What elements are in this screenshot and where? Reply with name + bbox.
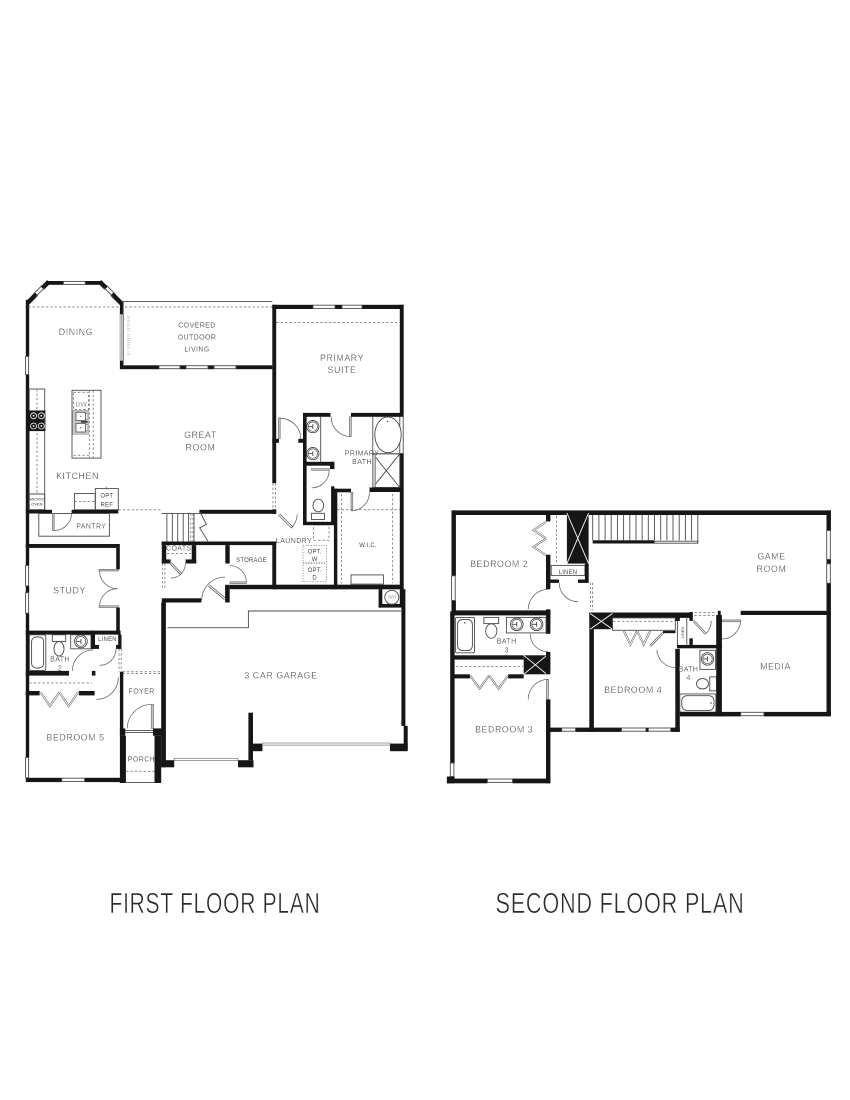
svg-text:OPT.: OPT. (308, 568, 322, 574)
svg-text:LINEN: LINEN (559, 570, 578, 576)
svg-text:SLIDING DOOR: SLIDING DOOR (126, 315, 131, 355)
svg-text:OVEN: OVEN (31, 502, 42, 507)
svg-text:BATH: BATH (352, 459, 372, 466)
svg-text:REF: REF (100, 503, 113, 509)
svg-text:*: * (106, 485, 108, 490)
svg-text:OPT: OPT (100, 494, 113, 500)
svg-text:SUITE: SUITE (328, 365, 357, 375)
svg-text:3: 3 (505, 647, 509, 654)
svg-text:BATH: BATH (679, 666, 699, 673)
svg-text:LIVING: LIVING (184, 347, 209, 354)
svg-text:BEDROOM 5: BEDROOM 5 (46, 733, 104, 743)
svg-text:PRIMARY: PRIMARY (320, 353, 364, 363)
svg-text:BATH: BATH (50, 657, 70, 664)
svg-text:DINING: DINING (59, 327, 93, 337)
svg-text:MEDIA: MEDIA (760, 662, 791, 672)
svg-text:4: 4 (686, 675, 690, 682)
svg-text:W.I.C.: W.I.C. (359, 543, 377, 549)
svg-text:OPT.: OPT. (308, 549, 322, 555)
svg-text:BEDROOM 2: BEDROOM 2 (470, 559, 528, 569)
svg-text:GREAT: GREAT (184, 430, 217, 440)
svg-text:COVERED: COVERED (178, 323, 215, 330)
svg-text:BEDROOM 3: BEDROOM 3 (475, 725, 533, 735)
svg-text:3 CAR GARAGE: 3 CAR GARAGE (244, 671, 317, 681)
svg-text:LINEN: LINEN (680, 627, 685, 639)
svg-text:BEDROOM 4: BEDROOM 4 (604, 685, 662, 695)
svg-text:ROOM: ROOM (186, 443, 216, 453)
svg-text:STUDY: STUDY (53, 586, 86, 596)
svg-text:STORAGE: STORAGE (236, 558, 267, 564)
svg-text:PORCH: PORCH (128, 756, 155, 763)
svg-text:D: D (312, 575, 317, 581)
svg-text:ROOM: ROOM (757, 564, 787, 574)
svg-text:COATS: COATS (166, 546, 192, 553)
svg-text:OUTDOOR: OUTDOOR (178, 335, 217, 342)
svg-text:SECOND FLOOR PLAN: SECOND FLOOR PLAN (496, 888, 745, 920)
svg-text:W: W (312, 557, 318, 563)
svg-text:DW: DW (76, 401, 88, 408)
svg-text:FOYER: FOYER (129, 689, 155, 696)
svg-text:LAUNDRY: LAUNDRY (276, 538, 312, 545)
svg-text:GAME: GAME (757, 552, 785, 562)
svg-text:PANTRY: PANTRY (76, 523, 106, 530)
svg-text:WH: WH (388, 595, 397, 601)
svg-text:KITCHEN: KITCHEN (56, 471, 99, 481)
svg-text:LINEN: LINEN (98, 637, 117, 643)
svg-text:FIRST FLOOR PLAN: FIRST FLOOR PLAN (110, 888, 321, 920)
svg-text:BATH: BATH (497, 639, 517, 646)
